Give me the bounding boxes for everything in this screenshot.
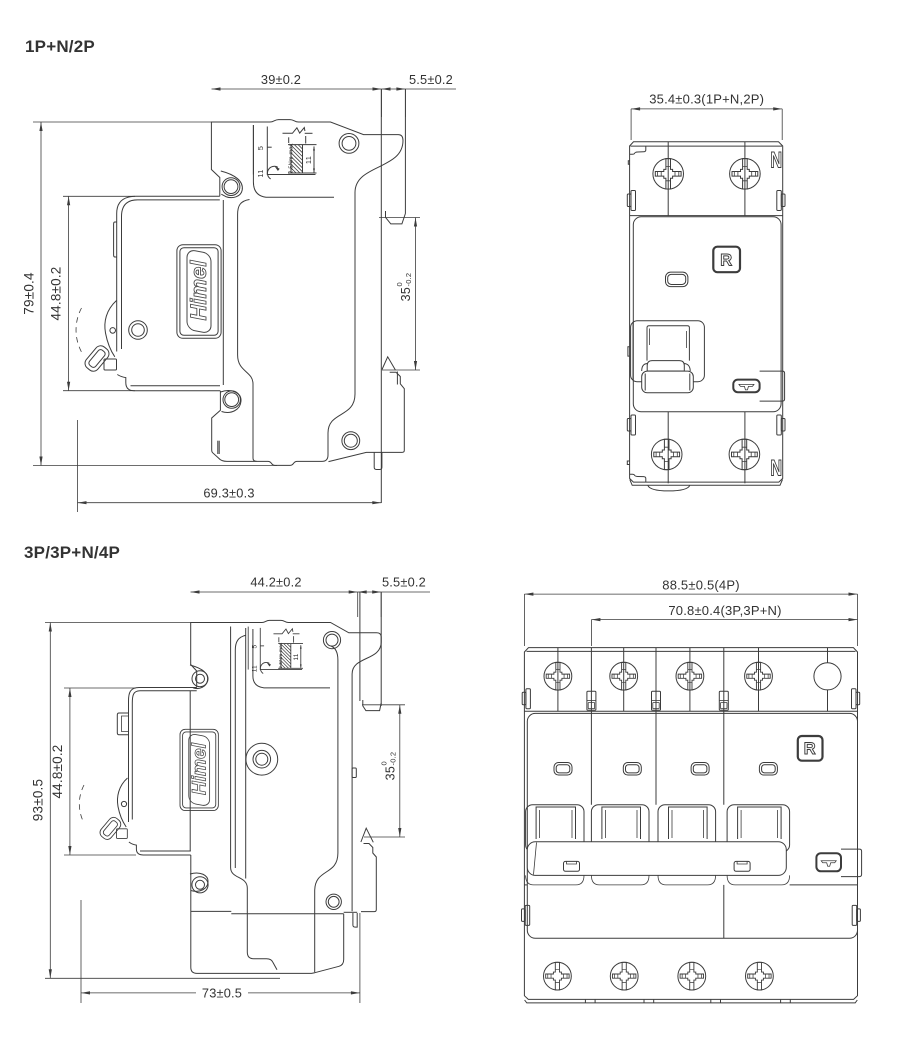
- svg-text:R: R: [804, 740, 816, 758]
- svg-text:93±0.5: 93±0.5: [31, 779, 46, 821]
- svg-text:R: R: [720, 251, 732, 269]
- svg-text:N: N: [770, 456, 782, 481]
- svg-text:69.3±0.3: 69.3±0.3: [203, 486, 254, 501]
- svg-text:-0.2: -0.2: [404, 273, 413, 287]
- svg-text:11: 11: [293, 653, 300, 660]
- svg-text:5: 5: [252, 644, 259, 648]
- svg-text:5: 5: [256, 146, 265, 150]
- svg-text:0: 0: [395, 282, 404, 286]
- svg-text:39±0.2: 39±0.2: [261, 72, 301, 87]
- svg-text:5.5±0.2: 5.5±0.2: [382, 575, 426, 590]
- svg-text:2.5Nm max: 2.5Nm max: [288, 143, 294, 173]
- svg-text:35.4±0.3(1P+N,2P): 35.4±0.3(1P+N,2P): [649, 92, 764, 107]
- svg-text:11: 11: [256, 169, 265, 177]
- svg-text:0: 0: [380, 761, 389, 765]
- svg-text:88.5±0.5(4P): 88.5±0.5(4P): [662, 578, 739, 593]
- svg-text:Himel: Himel: [186, 260, 211, 321]
- svg-text:5.5±0.2: 5.5±0.2: [409, 72, 453, 87]
- svg-text:35: 35: [384, 766, 398, 780]
- svg-text:70.8±0.4(3P,3P+N): 70.8±0.4(3P,3P+N): [668, 603, 781, 618]
- svg-text:1P+N/2P: 1P+N/2P: [25, 37, 95, 56]
- svg-text:11: 11: [304, 156, 313, 164]
- svg-text:2.5Nm max: 2.5Nm max: [278, 642, 284, 669]
- svg-text:Himel: Himel: [189, 742, 210, 795]
- svg-text:35: 35: [399, 287, 413, 301]
- svg-text:3P/3P+N/4P: 3P/3P+N/4P: [24, 543, 120, 562]
- svg-text:11: 11: [252, 665, 259, 672]
- svg-text:73±0.5: 73±0.5: [202, 985, 242, 1000]
- svg-text:N: N: [770, 148, 782, 173]
- svg-text:-0.2: -0.2: [389, 752, 398, 766]
- svg-text:79±0.4: 79±0.4: [22, 272, 37, 315]
- svg-text:44.8±0.2: 44.8±0.2: [50, 744, 65, 798]
- svg-text:44.8±0.2: 44.8±0.2: [49, 266, 64, 320]
- svg-text:44.2±0.2: 44.2±0.2: [250, 575, 301, 590]
